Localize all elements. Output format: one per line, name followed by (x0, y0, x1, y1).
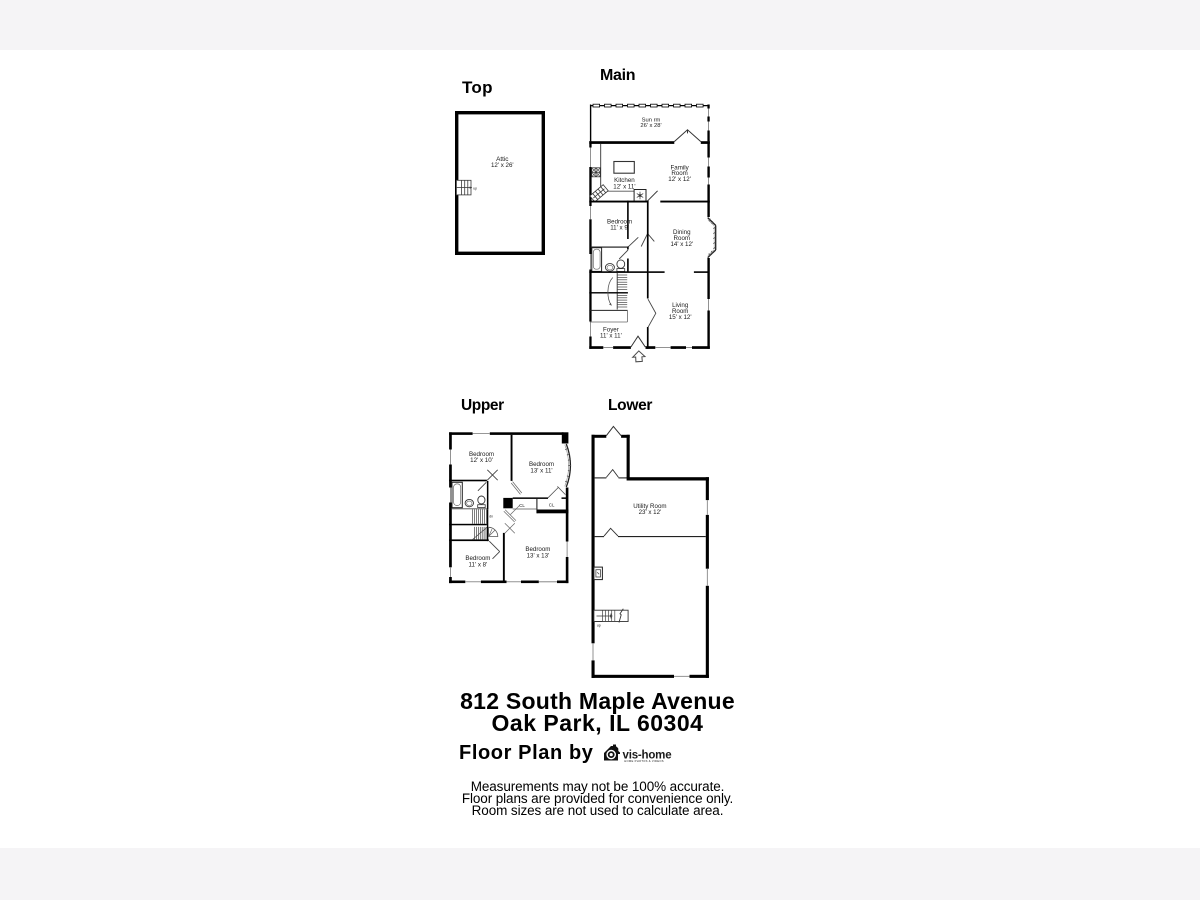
svg-text:12' x 10': 12' x 10' (470, 457, 493, 464)
svg-text:12' x 26': 12' x 26' (491, 162, 514, 169)
svg-text:11' x 8': 11' x 8' (469, 562, 488, 569)
svg-text:23' x 12': 23' x 12' (639, 509, 662, 516)
svg-text:HOME PHOTOS & VIDEOS: HOME PHOTOS & VIDEOS (624, 759, 664, 763)
svg-text:11' x 11': 11' x 11' (600, 332, 622, 339)
svg-text:CL: CL (519, 503, 525, 508)
svg-text:CL: CL (549, 502, 555, 507)
svg-text:15' x 12': 15' x 12' (669, 314, 692, 321)
svg-text:12' x 11': 12' x 11' (613, 183, 635, 190)
svg-text:up: up (597, 624, 601, 628)
svg-text:11' x 9': 11' x 9' (610, 224, 629, 231)
svg-text:13' x 11': 13' x 11' (530, 467, 552, 474)
svg-text:dn: dn (489, 515, 493, 519)
svg-text:up: up (473, 186, 477, 190)
svg-text:26' x 28': 26' x 28' (640, 123, 661, 129)
svg-text:14' x 12': 14' x 12' (670, 241, 693, 248)
svg-text:12' x 12': 12' x 12' (668, 176, 691, 183)
svg-text:13' x 13': 13' x 13' (527, 552, 550, 559)
